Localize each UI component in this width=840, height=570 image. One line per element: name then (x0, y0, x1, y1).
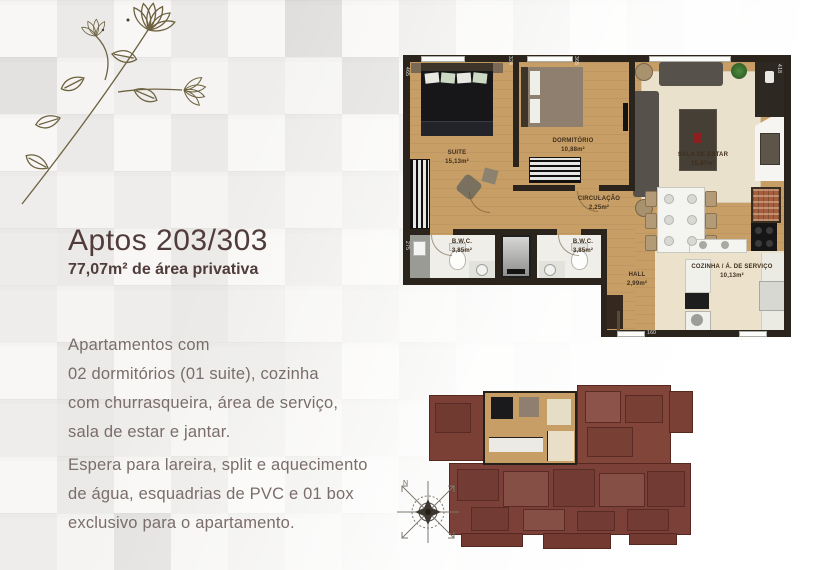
oven (685, 293, 709, 309)
overview-room (503, 471, 549, 507)
description-line: 02 dormitórios (01 suite), cozinha (68, 365, 319, 384)
room-label-circulacao: CIRCULAÇÃO 2,25m² (561, 195, 637, 213)
wall (599, 185, 635, 191)
entry-door (617, 331, 645, 337)
bathroom-fixture (413, 241, 426, 256)
room-label-dormitorio: DORMITÓRIO 10,88m² (535, 137, 611, 155)
plate (687, 236, 697, 246)
wall (531, 235, 537, 278)
description-line: exclusivo para o apartamento. (68, 514, 295, 533)
suite-wardrobe (410, 159, 430, 229)
sofa (633, 91, 659, 197)
room-name: DORMITÓRIO (535, 137, 611, 146)
dorm-bed-headboard (521, 67, 528, 127)
overview-room (577, 511, 615, 531)
building-block (669, 391, 693, 433)
room-area: 2,25m² (561, 204, 637, 213)
room-label-bwc-suite: B.W.C. 3,85m² (433, 238, 491, 256)
wall (403, 55, 410, 285)
background-tile (171, 285, 228, 342)
mini-rug (547, 399, 571, 425)
round-table (635, 63, 653, 81)
botanical-illustration (8, 0, 223, 205)
room-area: 2,99m² (615, 280, 659, 289)
background-tile (0, 228, 57, 285)
wall (453, 229, 557, 235)
wall (784, 55, 791, 337)
background-tile (342, 57, 399, 114)
building-block (629, 533, 677, 545)
floor-plan: SUITE 15,13m² DORMITÓRIO 10,88m² SALA DE… (403, 55, 791, 337)
island-sink (721, 241, 729, 249)
mini-bed (519, 397, 539, 417)
wall (495, 235, 501, 278)
hall-cabinet (607, 295, 623, 329)
room-area: 10,13m² (680, 272, 784, 281)
background-tile (285, 0, 342, 57)
page-title: Aptos 203/303 (68, 224, 268, 258)
building-overview-plan (427, 385, 695, 547)
dining-chair (645, 213, 657, 229)
pillow (530, 71, 540, 95)
wall-dimension: 418 (776, 64, 781, 73)
tv-panel (623, 103, 628, 131)
compass-rose: N (393, 477, 463, 547)
overview-room (457, 469, 499, 501)
dining-chair (705, 213, 717, 229)
burner (766, 227, 773, 234)
room-name: B.W.C. (557, 238, 609, 247)
burner (766, 240, 773, 247)
wall (403, 278, 607, 285)
overview-room (599, 473, 645, 507)
fireplace (760, 133, 780, 165)
wall-dimension: 465 (404, 67, 409, 76)
pillow (457, 73, 472, 84)
overview-room (553, 469, 595, 507)
room-label-suite: SUITE 15,13m² (421, 149, 493, 167)
wall (581, 229, 601, 235)
room-name: SUITE (421, 149, 493, 158)
mini-bathrooms (489, 437, 543, 452)
brochure-page: Aptos 203/303 77,07m² de área privativa … (0, 0, 840, 570)
service-door (739, 331, 767, 337)
sofa (659, 62, 723, 86)
compass-north-label: N (403, 480, 408, 487)
shower-head (507, 269, 525, 274)
plate (687, 215, 697, 225)
plate (664, 236, 674, 246)
window (527, 56, 573, 62)
pillow (425, 72, 440, 83)
room-name: B.W.C. (433, 238, 491, 247)
wall-dimension: 275 (404, 241, 409, 250)
building-block (461, 533, 523, 547)
island-sink (699, 241, 707, 249)
overview-room (523, 509, 565, 531)
door-leaf (617, 311, 620, 331)
bed-throw (421, 121, 493, 136)
overview-room (585, 391, 621, 423)
room-name: SALA DE ESTAR (661, 151, 745, 160)
fridge (759, 281, 786, 311)
suite-bed-headboard (421, 63, 493, 71)
wall (410, 229, 430, 235)
burner (755, 227, 762, 234)
speaker-icon (765, 71, 774, 83)
room-name: COZINHA / Á. DE SERVIÇO (680, 263, 784, 272)
overview-room (587, 427, 633, 457)
page-subtitle: 77,07m² de área privativa (68, 261, 258, 279)
building-block (543, 533, 611, 549)
description-line: de água, esquadrias de PVC e 01 box (68, 485, 354, 504)
overview-room (627, 509, 669, 531)
plate (664, 215, 674, 225)
wall (513, 62, 519, 167)
description-line: Apartamentos com (68, 336, 210, 355)
description-line: Espera para lareira, split e aquecimento (68, 456, 368, 475)
overview-room (471, 507, 509, 531)
pillow (441, 72, 456, 83)
room-area: 3,85m² (433, 247, 491, 256)
room-area: 10,88m² (535, 146, 611, 155)
room-name: CIRCULAÇÃO (561, 195, 637, 204)
dorm-wardrobe (529, 157, 581, 183)
room-label-bwc-social: B.W.C. 3,85m² (557, 238, 609, 256)
washer-door (691, 314, 703, 326)
wall-dimension: 365 (573, 56, 578, 65)
burner (755, 240, 762, 247)
dining-chair (705, 191, 717, 207)
sink (476, 264, 488, 276)
wall (513, 185, 575, 191)
nightstand (411, 63, 421, 73)
overview-room (625, 395, 663, 423)
plate (687, 194, 697, 204)
description-line: com churrasqueira, área de serviço, (68, 394, 338, 413)
room-label-hall: HALL 2,99m² (615, 271, 659, 289)
window (649, 56, 731, 62)
dining-chair (645, 235, 657, 251)
overview-room (647, 471, 685, 507)
room-label-cozinha: COZINHA / Á. DE SERVIÇO 10,13m² (680, 263, 784, 281)
highlighted-unit (483, 391, 577, 465)
pillow (473, 72, 488, 83)
plant (731, 63, 747, 79)
wall-dimension: 160 (647, 331, 656, 336)
dining-chair (645, 191, 657, 207)
room-area: 3,85m² (557, 247, 609, 256)
pillow (530, 99, 540, 123)
room-name: HALL (615, 271, 659, 280)
churrasqueira (751, 187, 781, 223)
kitchen-island (689, 239, 747, 253)
overview-room (435, 403, 471, 433)
room-area: 15,13m² (421, 158, 493, 167)
table-decor (693, 133, 701, 143)
mini-kitchen (547, 431, 574, 461)
wall-dimension: 324 (507, 56, 512, 65)
plate (664, 194, 674, 204)
room-label-sala: SALA DE ESTAR 15,87m² (661, 151, 745, 169)
sink (544, 264, 556, 276)
nightstand (493, 63, 503, 73)
room-area: 15,87m² (661, 160, 745, 169)
mini-bed (491, 397, 513, 419)
description-line: sala de estar e jantar. (68, 423, 230, 442)
wall (629, 62, 635, 185)
window (421, 56, 465, 62)
